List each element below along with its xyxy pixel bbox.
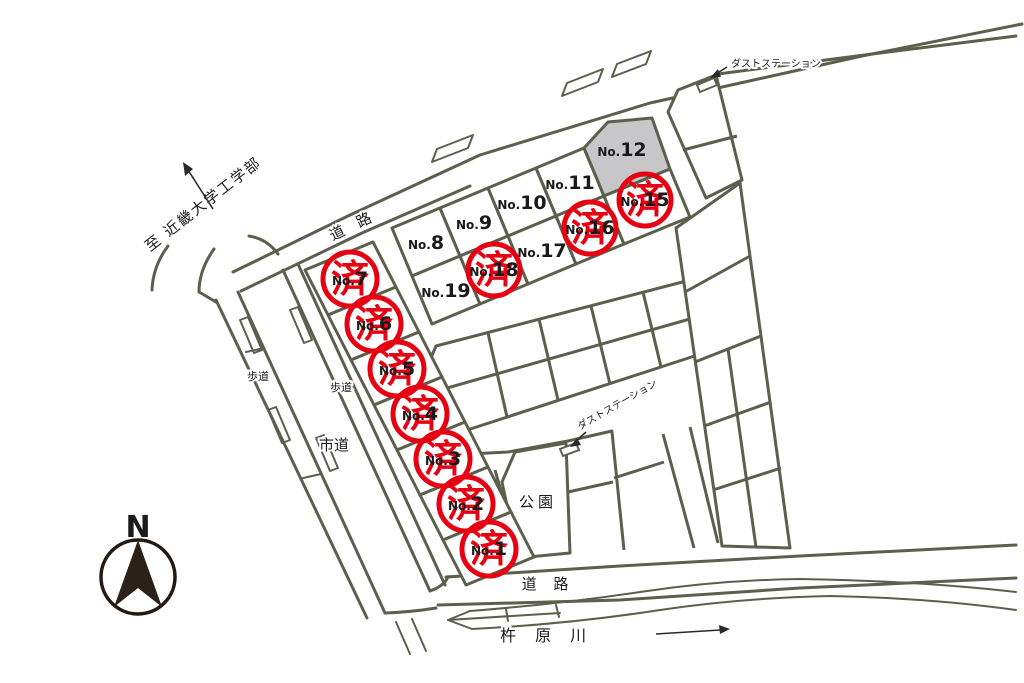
top-right-block <box>668 75 742 198</box>
sold-stamp-no1: 済 No.1 <box>462 522 516 576</box>
right-band-lots <box>676 183 790 548</box>
sidewalk-strip-2 <box>268 407 290 443</box>
bottom-road-label: 道 路 <box>522 575 575 593</box>
north-compass: N <box>101 510 175 614</box>
north-label: N <box>125 510 150 545</box>
north-needle <box>114 540 162 607</box>
lot-map-canvas: No.8 No.9 No.10 No.11 No.12 No.17 No.19 … <box>0 0 1024 683</box>
city-road-label: 市道 <box>319 436 349 454</box>
road-step-3 <box>432 135 473 162</box>
dust-station-top-label: ダストステーション <box>731 57 821 70</box>
sidewalk-label-right: 歩道 <box>330 380 352 394</box>
road-step-2 <box>612 51 651 77</box>
road-step-1 <box>562 69 603 96</box>
sold-stamp-no16: 済 No.16 <box>564 202 616 254</box>
park-label: 公園 <box>519 493 557 511</box>
intersection-curves <box>152 236 278 302</box>
to-university-label: 至 近畿大学工学部 <box>141 153 265 255</box>
sold-stamp-no15: 済 No.15 <box>619 174 671 226</box>
lot-map: No.8 No.9 No.10 No.11 No.12 No.17 No.19 … <box>0 0 1024 683</box>
sold-stamp-no18: 済 No.18 <box>468 244 520 296</box>
sidewalk-label-left: 歩道 <box>247 369 269 383</box>
river-label: 杵 原 川 <box>500 626 593 645</box>
river-flow-arrow <box>656 625 730 634</box>
